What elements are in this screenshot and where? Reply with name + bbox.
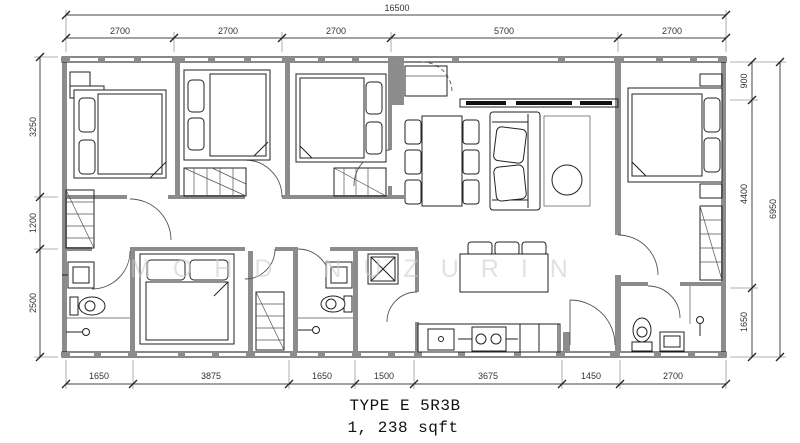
plan-area: 1, 238 sqft bbox=[347, 419, 458, 437]
door-arc-kitchen-corridor bbox=[570, 300, 615, 345]
door-arc-bedroom1 bbox=[130, 199, 171, 240]
shower-symbol-bath1 bbox=[66, 329, 90, 336]
dim-left-3: 2500 bbox=[28, 293, 38, 313]
wardrobe-symbol-master bbox=[700, 206, 722, 280]
dim-top-1: 2700 bbox=[110, 26, 130, 36]
dimension-left: 3250 1200 2500 bbox=[28, 53, 44, 361]
kitchen-counter-symbol bbox=[418, 324, 560, 352]
door-arc-utility bbox=[387, 292, 417, 322]
dim-top-5: 2700 bbox=[662, 26, 682, 36]
entry-cabinet-symbol bbox=[405, 66, 447, 96]
dim-top-4: 5700 bbox=[494, 26, 514, 36]
window-bottom bbox=[62, 352, 726, 357]
dim-right-2: 4400 bbox=[739, 184, 749, 204]
bed-symbol-master bbox=[628, 74, 722, 198]
dim-bottom-1: 1650 bbox=[89, 371, 109, 381]
floorplan-drawing: 16500 2700 2700 2700 5700 2700 3250 1200… bbox=[0, 0, 800, 443]
toilet-symbol-bath2 bbox=[321, 296, 352, 312]
basin-symbol-master bbox=[660, 332, 684, 351]
toilet-symbol-master bbox=[632, 318, 652, 351]
door-arc-bedroom2 bbox=[245, 160, 282, 197]
coffee-table-symbol bbox=[544, 116, 590, 206]
dim-left-1: 3250 bbox=[28, 117, 38, 137]
wardrobe-symbol-bedroom4 bbox=[256, 292, 284, 350]
floorplan-page: 16500 2700 2700 2700 5700 2700 3250 1200… bbox=[0, 0, 800, 443]
dim-bottom-4: 1500 bbox=[374, 371, 394, 381]
sofa-symbol bbox=[490, 112, 540, 210]
wardrobe-symbol-bedroom3 bbox=[334, 168, 386, 196]
wardrobe-symbol-bedroom2 bbox=[184, 168, 246, 196]
shower-symbol-bath2 bbox=[298, 327, 320, 334]
dim-bottom-6: 1450 bbox=[581, 371, 601, 381]
bed-symbol-bedroom3 bbox=[296, 74, 386, 162]
tv-console-symbol bbox=[460, 99, 618, 107]
dim-right-3: 1650 bbox=[739, 312, 749, 332]
dim-top-2: 2700 bbox=[218, 26, 238, 36]
door-arc-bath1 bbox=[92, 251, 130, 289]
dimension-bottom: 1650 3875 1650 1500 3675 1450 2700 bbox=[62, 371, 730, 388]
dim-right-1: 900 bbox=[739, 73, 749, 88]
dim-top-3: 2700 bbox=[326, 26, 346, 36]
door-arc-master-bath bbox=[648, 286, 680, 318]
dim-bottom-7: 2700 bbox=[663, 371, 683, 381]
dim-bottom-3: 1650 bbox=[312, 371, 332, 381]
toilet-symbol-bath1 bbox=[70, 297, 105, 315]
dim-right-total: 6950 bbox=[768, 199, 778, 219]
bar-stool-symbol bbox=[468, 242, 546, 255]
dim-left-2: 1200 bbox=[28, 213, 38, 233]
dimension-right: 900 4400 1650 6950 bbox=[739, 58, 784, 361]
bed-symbol-bedroom2 bbox=[184, 70, 270, 160]
dim-top-total: 16500 bbox=[384, 3, 409, 13]
dim-bottom-5: 3675 bbox=[478, 371, 498, 381]
dining-table-symbol bbox=[405, 116, 479, 206]
plan-title: TYPE E 5R3B bbox=[349, 397, 460, 415]
window-top bbox=[62, 57, 726, 62]
watermark-text: MOHD NUZURIN bbox=[130, 255, 590, 283]
dim-bottom-2: 3875 bbox=[201, 371, 221, 381]
bed-symbol-bedroom1 bbox=[70, 72, 166, 178]
door-arc-master-bedroom bbox=[618, 235, 658, 275]
dimension-top: 16500 2700 2700 2700 5700 2700 bbox=[62, 3, 730, 42]
shower-symbol-master bbox=[697, 317, 704, 337]
